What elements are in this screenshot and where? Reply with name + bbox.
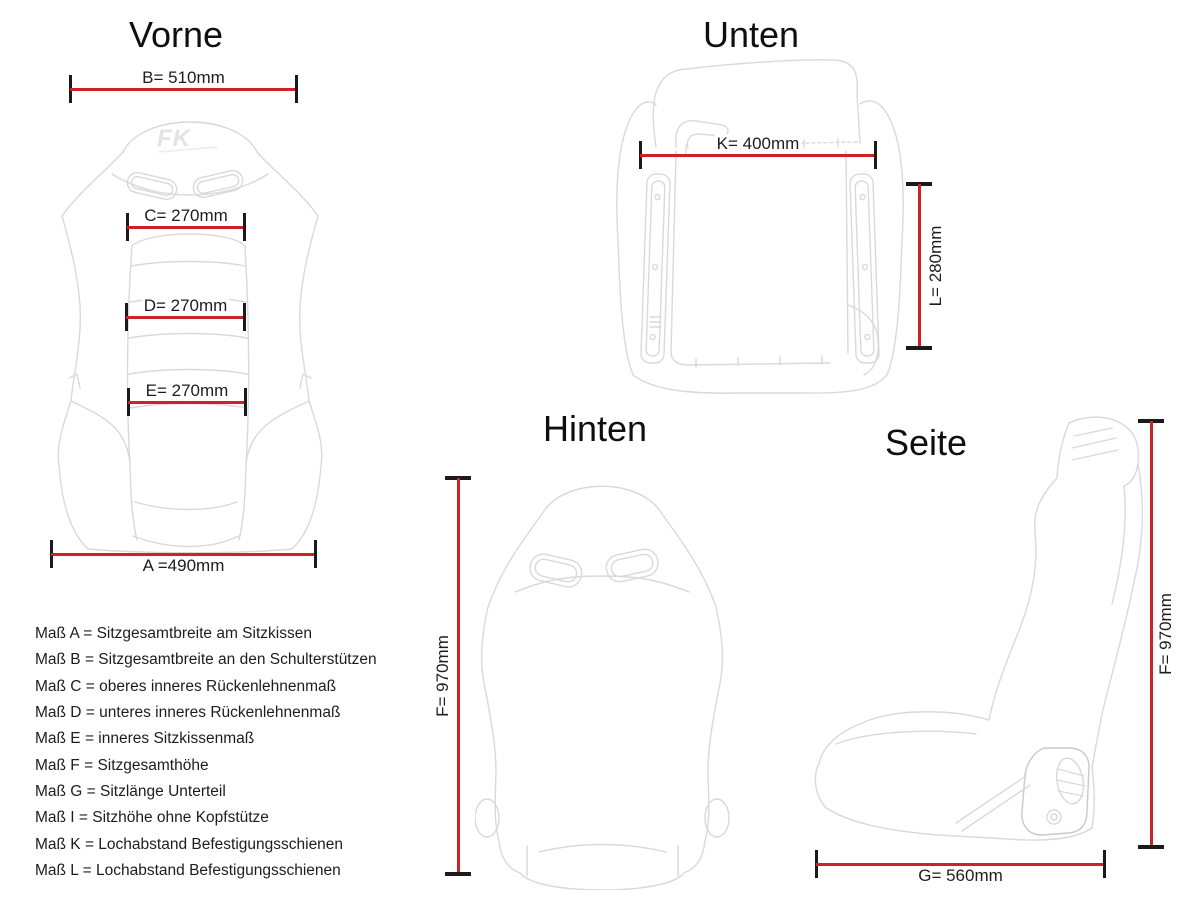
dimension-A: A =490mm [50, 540, 317, 568]
view-title-side: Seite [885, 422, 967, 464]
dimension-label-F-back: F= 970mm [433, 635, 453, 717]
dimension-label-G: G= 560mm [916, 866, 1005, 886]
view-title-back: Hinten [543, 408, 647, 450]
dimension-label-F-side: F= 970mm [1156, 593, 1176, 675]
dimension-tick [1103, 850, 1106, 878]
seat-dimension-diagram: Vorne FK B= 510mm C= 270mm D= [0, 0, 1200, 900]
dimension-line [51, 553, 316, 556]
dimension-line [127, 226, 245, 229]
legend-item-L: Maß L = Lochabstand Befestigungsschienen [35, 858, 377, 884]
dimension-line [128, 401, 246, 404]
dimension-line [1150, 421, 1153, 847]
legend-item-A: Maß A = Sitzgesamtbreite am Sitzkissen [35, 621, 377, 647]
dimension-K: K= 400mm [639, 141, 877, 169]
dimension-tick [314, 540, 317, 568]
dimension-line [126, 316, 245, 319]
seat-sketch-side [806, 414, 1146, 854]
dimension-tick [244, 388, 247, 416]
dimension-G: G= 560mm [815, 850, 1106, 878]
seat-sketch-front: FK [55, 106, 325, 558]
dimension-tick [1138, 845, 1164, 849]
dimension-label-C: C= 270mm [142, 206, 230, 226]
dimension-C: C= 270mm [126, 213, 246, 241]
legend-item-D: Maß D = unteres inneres Rückenlehnenmaß [35, 700, 377, 726]
dimension-L: L= 280mm [906, 182, 932, 350]
dimension-label-E: E= 270mm [144, 381, 231, 401]
dimension-label-L: L= 280mm [926, 226, 946, 307]
dimension-label-A: A =490mm [141, 556, 227, 576]
dimension-F-back: F= 970mm [445, 476, 471, 876]
legend-item-I: Maß I = Sitzhöhe ohne Kopfstütze [35, 805, 377, 831]
legend-item-C: Maß C = oberes inneres Rückenlehnenmaß [35, 674, 377, 700]
legend-item-F: Maß F = Sitzgesamthöhe [35, 753, 377, 779]
dimension-tick [906, 346, 932, 350]
legend: Maß A = Sitzgesamtbreite am Sitzkissen M… [35, 621, 377, 884]
dimension-tick [445, 872, 471, 876]
dimension-E: E= 270mm [127, 388, 247, 416]
seat-sketch-bottom [608, 55, 912, 395]
dimension-line [918, 184, 921, 348]
dimension-line [70, 88, 297, 91]
seat-sketch-back [475, 472, 730, 890]
dimension-B: B= 510mm [69, 75, 298, 103]
legend-item-G: Maß G = Sitzlänge Unterteil [35, 779, 377, 805]
view-title-bottom: Unten [703, 14, 799, 56]
legend-item-K: Maß K = Lochabstand Befestigungsschienen [35, 832, 377, 858]
dimension-line [816, 863, 1105, 866]
view-title-front: Vorne [129, 14, 223, 56]
dimension-line [640, 154, 876, 157]
dimension-label-K: K= 400mm [715, 134, 802, 154]
dimension-D: D= 270mm [125, 303, 246, 331]
legend-item-B: Maß B = Sitzgesamtbreite an den Schulter… [35, 647, 377, 673]
dimension-label-D: D= 270mm [142, 296, 230, 316]
legend-item-E: Maß E = inneres Sitzkissenmaß [35, 726, 377, 752]
dimension-tick [295, 75, 298, 103]
dimension-tick [874, 141, 877, 169]
dimension-tick [243, 213, 246, 241]
dimension-tick [243, 303, 246, 331]
dimension-F-side: F= 970mm [1138, 419, 1164, 849]
fk-logo: FK [157, 125, 192, 152]
dimension-label-B: B= 510mm [140, 68, 227, 88]
dimension-line [457, 478, 460, 874]
